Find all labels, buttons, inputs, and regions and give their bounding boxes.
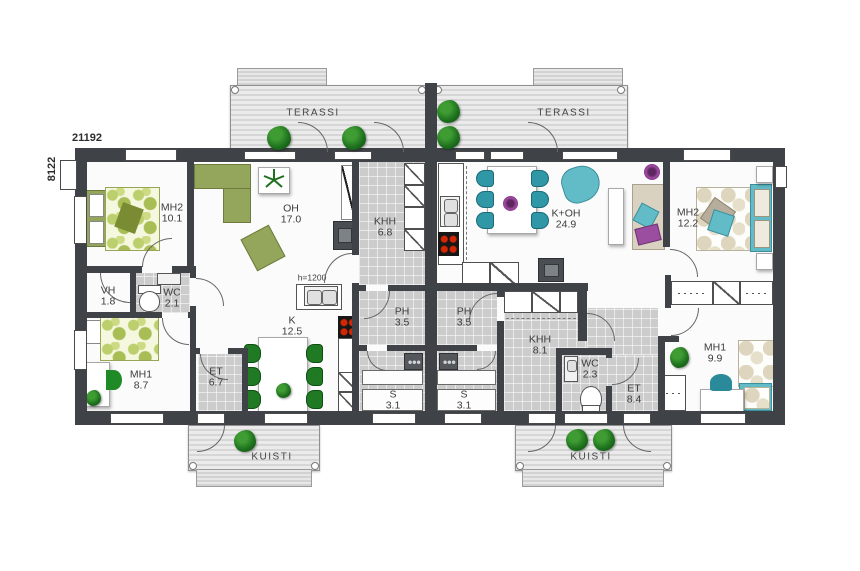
- room-label-et-right: ET8.4: [627, 384, 642, 407]
- sauna-heater: [439, 353, 458, 370]
- bed-pillow: [754, 189, 770, 217]
- bush-icon: [566, 429, 588, 451]
- wall: [437, 345, 477, 351]
- cabinet: [404, 163, 425, 185]
- wall: [87, 266, 142, 273]
- wall: [606, 348, 612, 358]
- wall: [556, 348, 562, 415]
- terrace-door-sidelight: [244, 151, 296, 160]
- room-label-vh-left: VH1.8: [101, 286, 116, 309]
- room-label-mh2-right: MH212.2: [677, 208, 699, 231]
- bed-pillow: [89, 221, 104, 244]
- wall: [665, 275, 671, 308]
- table-plant-icon: [276, 383, 291, 398]
- porch-post: [516, 462, 524, 470]
- dining-chair: [306, 367, 323, 386]
- room-label-wc-left: WC2.1: [163, 288, 181, 311]
- wall: [663, 162, 670, 247]
- counter-height-note: h=1200: [298, 273, 327, 282]
- bed-foot-blanket: [744, 387, 770, 409]
- room-label-koh-right: K+OH24.9: [552, 209, 581, 232]
- window: [74, 196, 87, 244]
- desk-chair-right: [710, 374, 732, 391]
- party-wall: [425, 83, 437, 425]
- bed-duvet: [738, 340, 775, 387]
- dining-chair: [306, 390, 323, 409]
- terrace-right-label: TERASSI: [537, 109, 590, 120]
- desk-chair: [106, 370, 122, 390]
- window: [334, 151, 372, 160]
- counter-edge-line: [466, 166, 467, 260]
- wall: [437, 283, 588, 291]
- dining-chair: [476, 170, 494, 187]
- sofa: [194, 164, 251, 189]
- entry-door-opening: [197, 413, 225, 424]
- sauna-bench: [362, 370, 423, 385]
- room-label-mh1-left: MH18.7: [130, 370, 152, 393]
- exterior-wall-right: [773, 148, 785, 425]
- wardrobe: [671, 281, 713, 305]
- porch-step-left: [196, 469, 312, 487]
- porch-post: [189, 462, 197, 470]
- wall: [387, 345, 425, 351]
- room-label-ph-right: PH3.5: [457, 307, 472, 330]
- wall: [352, 162, 359, 255]
- bush-icon: [234, 430, 256, 452]
- wc-sink: [157, 273, 181, 285]
- room-label-wc-right: WC2.3: [581, 359, 599, 382]
- room-label-et-left: ET6.7: [209, 367, 224, 390]
- wall: [497, 321, 504, 415]
- window: [775, 166, 787, 188]
- wall: [352, 283, 359, 415]
- dimension-height-label: 8122: [46, 157, 58, 181]
- floor-plan: 21192 8122 TERASSI TERASSI KUISTI KUISTI: [0, 0, 860, 571]
- wall: [578, 291, 587, 341]
- dining-chair: [531, 191, 549, 208]
- cabinet: [404, 185, 425, 207]
- wardrobe: [713, 281, 740, 305]
- bush-icon: [267, 126, 291, 150]
- room-label-mh2-left: MH210.1: [161, 203, 183, 226]
- wall: [388, 285, 425, 291]
- nightstand: [756, 253, 773, 270]
- stove-right: [438, 232, 459, 256]
- kitchen-sink-right: [440, 196, 460, 227]
- porch-step-right: [522, 469, 664, 487]
- room-label-khh-right: KHH8.1: [529, 335, 551, 358]
- sauna-bench: [437, 370, 496, 385]
- window: [125, 149, 177, 161]
- dining-chair: [306, 344, 323, 363]
- wc-sink-right: [564, 356, 578, 382]
- room-label-s-right: S3.1: [457, 390, 472, 413]
- bush-icon: [437, 126, 460, 149]
- wall: [658, 336, 665, 415]
- wardrobe: [740, 281, 773, 305]
- terrace-left-label: TERASSI: [286, 109, 339, 120]
- porch-post: [311, 462, 319, 470]
- nightstand: [756, 166, 773, 183]
- window: [110, 413, 164, 424]
- wall: [665, 336, 679, 342]
- dimension-width-label: 21192: [72, 132, 102, 144]
- plant-icon: [670, 347, 689, 368]
- bush-icon: [342, 126, 366, 150]
- cabinet: [404, 229, 425, 251]
- wall: [606, 386, 612, 415]
- window: [372, 413, 416, 424]
- bed-duvet: [100, 317, 159, 361]
- bed-pillow: [89, 194, 104, 217]
- entry-door-opening: [528, 413, 556, 424]
- room-label-s-left: S3.1: [386, 390, 401, 413]
- window: [74, 330, 87, 370]
- wall: [497, 291, 504, 297]
- dining-chair: [531, 212, 549, 229]
- wall: [190, 306, 196, 415]
- worktop-edge-line: [506, 318, 576, 319]
- porch-right-label: KUISTI: [570, 453, 611, 464]
- hall-wardrobe: [662, 375, 686, 411]
- room-label-mh1-right: MH19.9: [704, 343, 726, 366]
- sofa-chaise: [223, 188, 251, 223]
- wall: [130, 273, 136, 314]
- dining-chair: [476, 191, 494, 208]
- wall: [242, 354, 248, 411]
- window: [490, 151, 524, 160]
- porch-post: [663, 462, 671, 470]
- cabinet: [404, 207, 425, 229]
- window: [683, 149, 731, 161]
- cabinet: [504, 291, 532, 313]
- kitchen-sink: [304, 286, 338, 306]
- bed-pillow: [754, 220, 770, 248]
- plant-icon: [86, 390, 101, 406]
- wall: [192, 348, 200, 354]
- fireplace-right: [538, 258, 564, 282]
- room-label-ph-left: PH3.5: [395, 307, 410, 330]
- terrace-post: [231, 86, 239, 94]
- wall: [556, 348, 612, 355]
- window: [264, 413, 308, 424]
- table-flower-icon: [503, 196, 518, 211]
- wall: [187, 162, 194, 268]
- room-label-oh-left: OH17.0: [281, 204, 301, 227]
- cabinet: [532, 291, 560, 313]
- bush-icon: [593, 429, 615, 451]
- window: [562, 151, 618, 160]
- window: [444, 413, 482, 424]
- dining-table-left: [258, 337, 308, 413]
- sauna-heater: [404, 353, 423, 370]
- room-label-k-left: K12.5: [282, 316, 302, 339]
- toilet: [139, 291, 160, 312]
- porch-left-label: KUISTI: [251, 453, 292, 464]
- cabinet: [560, 291, 578, 313]
- houseplant-icon: [262, 168, 286, 192]
- window: [60, 160, 77, 190]
- entry-door-opening: [623, 413, 651, 424]
- wall: [359, 345, 367, 351]
- room-label-khh-left: KHH6.8: [374, 217, 396, 240]
- wall: [190, 266, 196, 278]
- bush-icon: [437, 100, 460, 123]
- window: [564, 413, 608, 424]
- window: [455, 151, 485, 160]
- coffee-table: [608, 188, 624, 245]
- terrace-post: [617, 86, 625, 94]
- flower-icon: [644, 164, 660, 180]
- dining-chair: [531, 170, 549, 187]
- window: [700, 413, 746, 424]
- wall: [87, 312, 162, 318]
- dining-chair: [476, 212, 494, 229]
